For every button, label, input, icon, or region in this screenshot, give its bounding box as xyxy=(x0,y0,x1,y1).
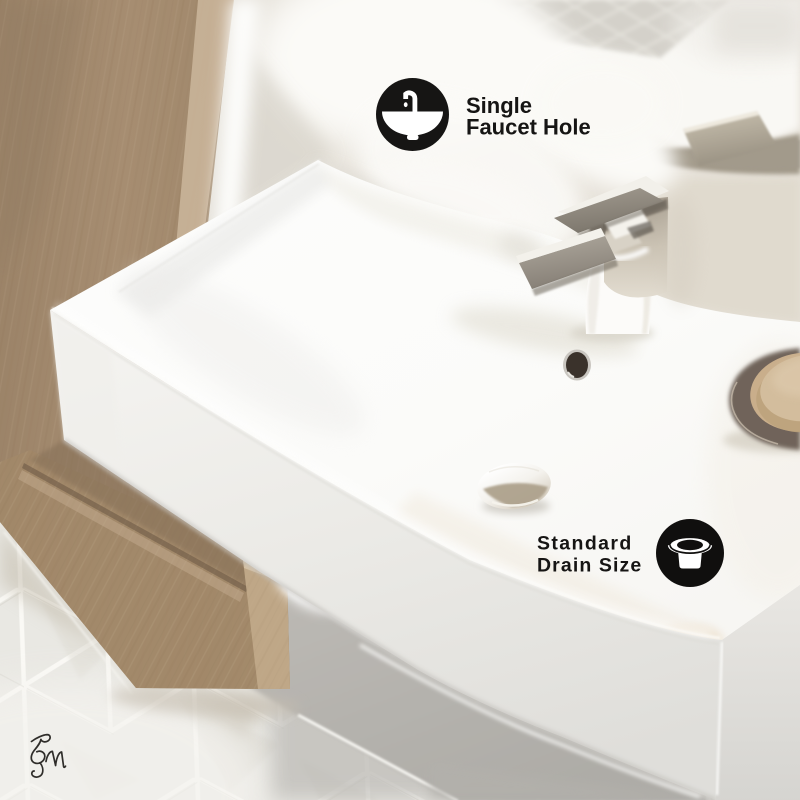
svg-text:Drain Size: Drain Size xyxy=(537,555,642,577)
svg-text:Standard: Standard xyxy=(537,533,633,555)
svg-text:Faucet Hole: Faucet Hole xyxy=(466,115,591,140)
